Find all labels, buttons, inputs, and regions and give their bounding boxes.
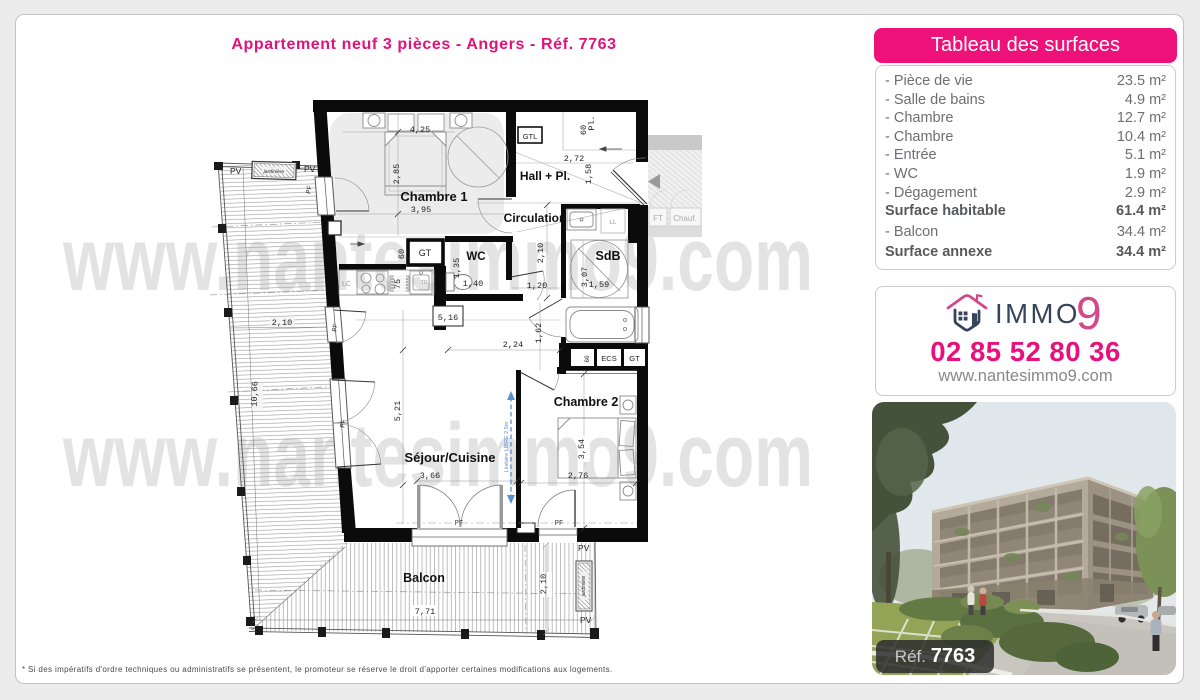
svg-text:Chauf.: Chauf. bbox=[673, 214, 697, 223]
svg-text:60: 60 bbox=[397, 249, 407, 259]
svg-text:2,76: 2,76 bbox=[568, 471, 588, 481]
svg-text:2,10: 2,10 bbox=[536, 243, 546, 263]
svg-text:3,54: 3,54 bbox=[577, 439, 587, 459]
svg-text:60: 60 bbox=[584, 355, 591, 363]
svg-text:Hall + Pl.: Hall + Pl. bbox=[520, 169, 570, 183]
svg-text:2,72: 2,72 bbox=[564, 154, 584, 164]
svg-text:9: 9 bbox=[1076, 292, 1102, 334]
svg-text:PV: PV bbox=[230, 166, 242, 176]
svg-text:5,16: 5,16 bbox=[438, 313, 458, 323]
svg-text:1,35: 1,35 bbox=[452, 258, 462, 278]
svg-text:IMMO: IMMO bbox=[995, 298, 1080, 329]
svg-text:LC: LC bbox=[342, 281, 351, 288]
svg-text:1,62: 1,62 bbox=[534, 323, 544, 343]
svg-text:2,10: 2,10 bbox=[272, 318, 292, 328]
svg-text:2,85: 2,85 bbox=[392, 164, 402, 184]
svg-text:LL: LL bbox=[609, 219, 617, 226]
svg-text:2,10: 2,10 bbox=[539, 574, 549, 594]
svg-text:Séjour/Cuisine: Séjour/Cuisine bbox=[404, 450, 495, 465]
svg-text:jardinière: jardinière bbox=[263, 169, 285, 176]
svg-text:60: 60 bbox=[579, 125, 589, 135]
svg-text:10,66: 10,66 bbox=[250, 381, 261, 407]
svg-text:75: 75 bbox=[393, 279, 403, 289]
svg-text:SdB: SdB bbox=[596, 249, 621, 263]
svg-text:PF: PF bbox=[331, 323, 340, 333]
svg-text:GT: GT bbox=[419, 248, 432, 258]
svg-text:Balcon: Balcon bbox=[403, 571, 445, 585]
svg-text:Linéaire LIBRE 2,5m: Linéaire LIBRE 2,5m bbox=[504, 421, 510, 472]
svg-text:GT: GT bbox=[629, 354, 640, 363]
svg-text:1,58: 1,58 bbox=[584, 164, 594, 184]
svg-text:1,20: 1,20 bbox=[527, 281, 547, 291]
svg-text:PF: PF bbox=[455, 520, 463, 528]
svg-text:Circulation: Circulation bbox=[504, 211, 567, 225]
svg-text:4,25: 4,25 bbox=[410, 125, 430, 135]
svg-text:PV: PV bbox=[304, 164, 316, 174]
svg-text:PV: PV bbox=[578, 543, 590, 553]
svg-text:Chambre 2: Chambre 2 bbox=[554, 395, 619, 409]
svg-text:1,59: 1,59 bbox=[589, 280, 609, 290]
svg-text:PF: PF bbox=[305, 185, 314, 195]
svg-text:5,21: 5,21 bbox=[393, 401, 403, 421]
svg-text:3,66: 3,66 bbox=[420, 471, 440, 481]
svg-text:jardinière: jardinière bbox=[581, 576, 587, 598]
svg-text:WC: WC bbox=[466, 251, 485, 263]
svg-text:3,95: 3,95 bbox=[411, 205, 431, 215]
svg-text:FT: FT bbox=[653, 214, 663, 223]
svg-text:TR: TR bbox=[421, 280, 428, 286]
svg-text:PF: PF bbox=[339, 419, 348, 429]
svg-text:2,24: 2,24 bbox=[503, 340, 523, 350]
svg-text:Chambre 1: Chambre 1 bbox=[400, 189, 467, 204]
svg-text:ECS: ECS bbox=[601, 354, 616, 363]
svg-text:GTL: GTL bbox=[523, 132, 538, 141]
svg-text:1,40: 1,40 bbox=[463, 279, 483, 289]
svg-text:7,71: 7,71 bbox=[415, 607, 435, 617]
svg-text:PF: PF bbox=[555, 520, 563, 528]
